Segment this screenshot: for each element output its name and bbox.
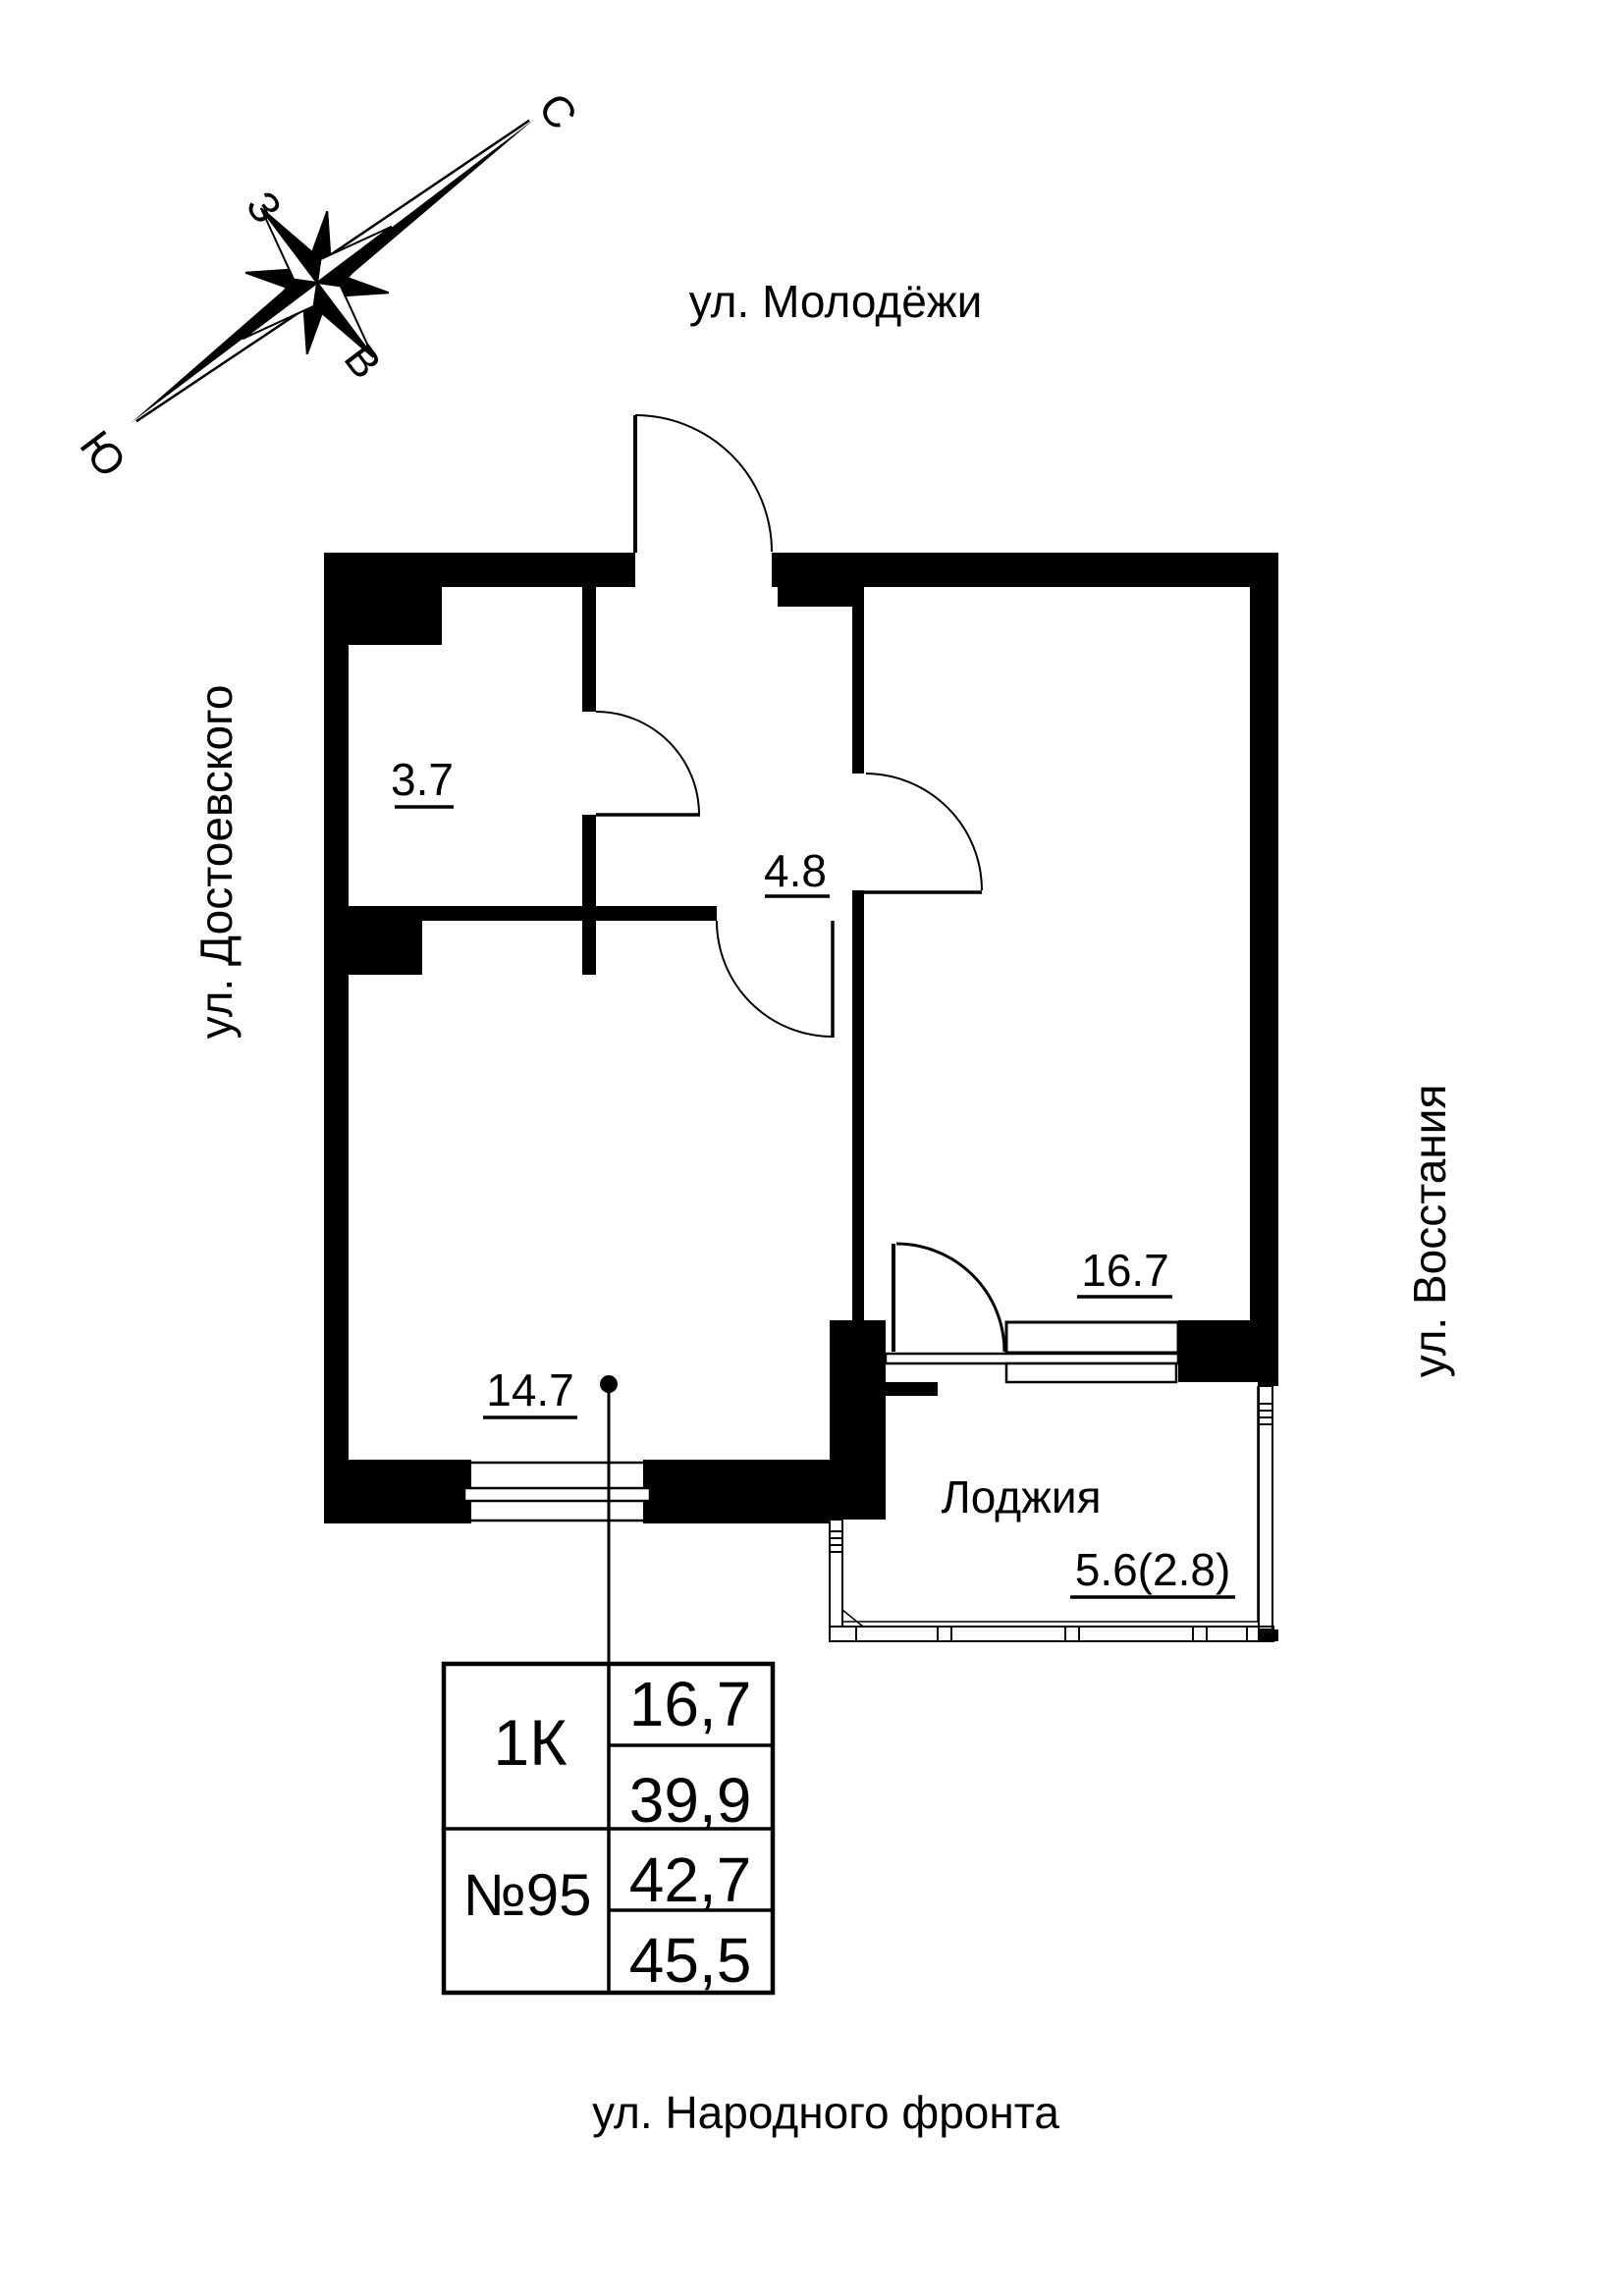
hall-area-label: 4.8: [764, 845, 827, 896]
room-door-swing-arc: [717, 921, 833, 1037]
balcony-door: [893, 1244, 1004, 1352]
floorplan-page: С Ю З В ул. Молодёжи ул. Народного фронт…: [0, 0, 1623, 2296]
compass-rose: С Ю З В: [16, 7, 635, 546]
compass-label-west: З: [237, 183, 291, 233]
living-loggia-window-sill: [886, 1354, 1178, 1363]
street-label-bottom: ул. Народного фронта: [592, 2087, 1059, 2138]
bathroom-area-label: 3.7: [391, 754, 454, 805]
area-value-cell-4: 45,5: [629, 1925, 752, 1996]
area-value-cell-1: 16,7: [629, 1669, 752, 1739]
balcony-door-swing-arc: [896, 1244, 1004, 1352]
street-label-left: ул. Достоевского: [190, 685, 242, 1040]
street-label-right: ул. Восстания: [1404, 1085, 1455, 1378]
compass-label-east: В: [335, 336, 391, 388]
room-area-label: 14.7: [486, 1364, 574, 1415]
flat-type-cell: 1К: [493, 1706, 568, 1779]
area-value-cell-3: 42,7: [629, 1844, 752, 1915]
room-door: [717, 921, 833, 1038]
living-loggia-window: [886, 1322, 1178, 1382]
room-window: [464, 1463, 650, 1521]
bathroom-door: [596, 712, 700, 815]
walls: [324, 553, 1278, 1641]
compass-label-south: Ю: [71, 422, 135, 486]
living-area-label: 16.7: [1081, 1245, 1169, 1296]
entry-door: [635, 415, 772, 553]
living-room-door-swing-arc: [866, 774, 982, 890]
street-label-top: ул. Молодёжи: [689, 276, 983, 327]
flat-number-cell: №95: [462, 1862, 591, 1928]
room-window-sill: [464, 1488, 650, 1501]
loggia-area-label: 5.6(2.8): [1075, 1544, 1231, 1595]
entry-door-swing-arc: [635, 415, 772, 552]
loggia-glazing-left: [830, 1520, 842, 1627]
bathroom-door-swing-arc: [596, 712, 699, 815]
loggia-name-label: Лоджия: [942, 1471, 1102, 1522]
living-room-door: [864, 774, 982, 892]
compass-label-north: С: [529, 84, 586, 138]
area-value-cell-2: 39,9: [629, 1765, 752, 1836]
floorplan-drawing: С Ю З В ул. Молодёжи ул. Народного фронт…: [0, 0, 1623, 2296]
compass-star: [187, 152, 448, 413]
info-table: 1К №95 16,7 39,9 42,7 45,5: [444, 1664, 773, 1996]
loggia-glazing-right: [1259, 1386, 1272, 1629]
